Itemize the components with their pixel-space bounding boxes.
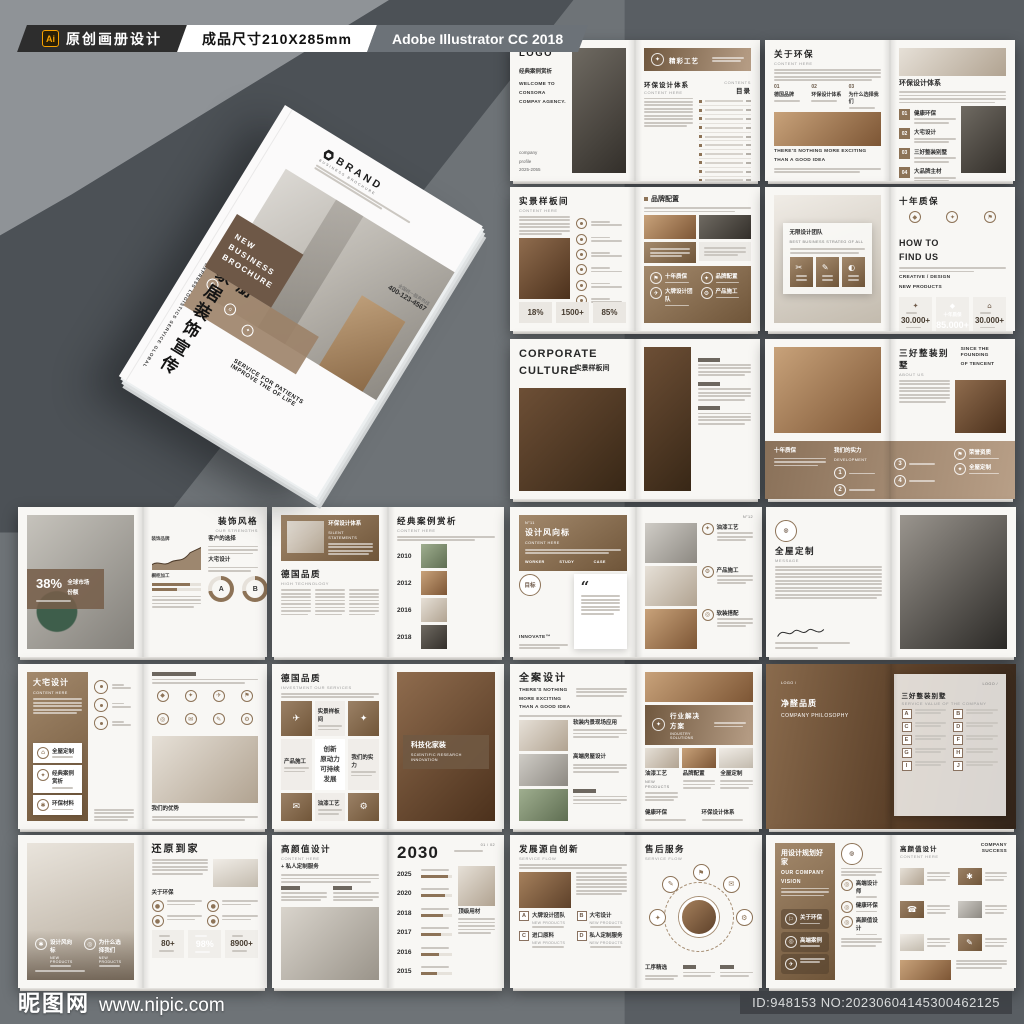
lettered-text: 大宅设计NEW PRODUCTS [590,911,628,928]
text-label: 01 / 02 [454,843,495,848]
text-label: INNOVATE™ [519,635,568,641]
spread-back-to-home: ✱设计风向标NEW PRODUCTS◎为什么选择我们NEW PRODUCTS还原… [18,835,267,988]
icon: ● [207,915,219,927]
panel: ⌂全屋定制 [33,743,82,763]
icon-item: ◎软装搭配 [702,609,754,627]
lettered-item: D [953,722,998,732]
spacer [781,688,866,696]
stat-icon: ◆ [950,302,955,310]
progress-track [421,933,452,936]
numbered-circle-row: 3 [894,458,946,470]
column: 202520202018201720162015 [397,866,452,980]
section-heading: 装饰风格OUR STRENGTHS [152,515,259,533]
spacer [519,598,568,632]
icon-grid: ⌂全屋定制 [37,747,78,759]
text-label: 份额 [67,590,94,597]
list-item-text [591,252,627,257]
text-label: 高端房屋设计 [573,754,627,761]
tile-cell [900,928,950,957]
text-lines [33,698,82,714]
icon-label: 全屋定制 [969,463,1006,471]
text-lines [966,722,998,727]
icon-grid: ◆✦✈⚑◎✉✎⚙ [152,690,259,734]
icon: ✦ [701,272,713,284]
panel: 大宅设计CONTENT HERE⌂全屋定制✦经典案例赏析✱环保材料 [27,672,88,821]
item-label: 三好整装别墅 [914,148,956,156]
toc-title-bar [705,109,743,111]
heading-en: INVESTMENT OUR SERVICES [281,685,379,690]
icon-item: ◎高颜值设计 [841,916,882,935]
timeline-row: 2016 [397,944,452,961]
column [900,960,951,980]
stats-row: 80+98%8900+ [152,930,259,958]
text-label: 健康环保 [645,810,697,817]
row [519,789,627,821]
text-lines [112,724,133,726]
progress-track [421,972,452,975]
heading-en: ABOUT US [899,372,956,377]
row: 高颜值设计CONTENT HERECOMPANY SUCCESS [900,843,1007,859]
column [699,242,751,263]
photo-placeholder [519,238,570,299]
item-text: 三好整装别墅 [914,148,956,163]
text-section [573,789,627,804]
section-heading: 售后服务SERVICE FLOW [645,843,753,861]
text-lines [590,926,628,928]
icon-item: ◎为什么选择我们NEW PRODUCTS [84,938,126,967]
text-lines [591,252,627,254]
icon-item: ● [207,900,258,912]
text-label: CONTENT HERE [33,691,82,696]
text-lines [232,935,251,937]
item-label: 健康环保 [914,109,956,117]
spread-timeline-2030: 高颜值设计CONTENT HERE+ 私人定制服务203001 / 022025… [272,835,504,988]
text-lines [790,248,866,253]
circle-number: 4 [894,475,906,487]
timeline-photo [421,598,447,622]
icon-item-text [800,958,825,963]
text-lines [716,297,746,299]
flow-node-icon: ⚑ [693,864,710,881]
panel: ◎高端案例 [781,932,829,952]
text-lines [848,275,859,280]
toc-title-bar [705,144,743,146]
toc-page-number [746,136,751,138]
step-number: 03 [849,84,881,90]
circle-badge-wrap: 目标 [519,574,568,596]
icon-label: 经典案例赏析 [52,769,78,785]
column [519,872,571,908]
text-label: 品牌配置 [644,195,751,204]
list-item [576,216,627,231]
column [720,965,753,980]
icon: ✈ [650,287,662,299]
text-lines [966,709,998,714]
icon-label: 十年质保 [665,272,695,280]
column [719,748,753,768]
spread-pages: 实景样板间CONTENT HERE18%1500+85%品牌配置⚑十年质保✦品牌… [510,187,760,331]
section-label-bar [698,382,720,386]
flow-node-icon: ✎ [662,876,679,893]
text-lines [915,709,947,714]
icon-item-text [222,900,258,905]
text-section [698,358,751,377]
icon-item: ✉ [180,713,202,733]
stat-value: 85.000+ [936,320,969,330]
panel: 环保设计体系SILENT STATEMENTS [281,515,379,561]
section-heading: 德国品质INVESTMENT OUR SERVICES [281,672,379,690]
photo-placeholder [645,523,697,563]
text-lines [717,532,754,541]
text-label: 大宅设计 [208,557,258,564]
row: ●●●● [152,900,259,927]
toc-row [699,177,751,181]
column [519,754,568,786]
progress-track [421,914,452,917]
text-label: NEW PRODUCTS [899,285,1006,291]
page-right: 还原到家关于环保●●●●80+98%8900+ [143,835,268,988]
list-item [576,278,627,293]
column [644,242,696,263]
numbered-circles: 12 [834,465,886,499]
icon-item-text: 关于环保 [800,913,825,924]
stat-card: 18% [519,302,552,323]
timeline-row: 2018 [397,625,495,649]
text-tile: 油漆工艺 [315,793,346,821]
row: 环保设计体系CONTENT HERECONTENTS目录 [644,79,751,173]
lettered-text [915,748,947,758]
letter-badge: E [902,735,912,745]
circle-icon [94,680,108,694]
page-left [765,339,890,441]
lettered-item: A [902,709,947,719]
step-label: 为什么选择我们 [849,91,881,105]
text-lines [969,458,1006,460]
spacer [281,564,379,565]
text-label: THAN A GOOD IDEA [774,158,881,164]
column: ●● [207,900,258,927]
spread-innovation: 德国品质INVESTMENT OUR SERVICES✈实景样板间✦产品施工创新… [272,664,504,829]
letter-badge: C [519,931,529,941]
text-lines [591,267,627,269]
toc-page-number [746,109,751,111]
icon: ✈ [785,958,797,970]
column [519,216,570,299]
column [572,48,626,173]
tile-text [927,872,950,881]
lettered-text [966,722,998,732]
text-label: 38% [36,576,63,593]
column: ⚙产品施工 [702,566,754,606]
heading-cn: 经典案例赏析 [397,515,495,527]
icon-item: ⚑十年质保 [650,272,695,284]
text-lines [573,729,627,738]
photo-placeholder [572,48,626,173]
text-lines [318,725,343,730]
item-text: 大品牌主材 [914,167,956,181]
photo-placeholder [900,960,951,980]
brochure-cover-mockup: BRAND BUSINESS BROCHURE ◐ ⌂ ✦ NEW BUSINE… [35,75,505,515]
spread-pages: 全案设计THERE'S NOTHINGMORE EXCITINGTHAN A G… [510,664,762,829]
header-product-label: 原创画册设计 [66,29,162,49]
text-lines [914,138,956,143]
spread-pages: 环保设计体系SILENT STATEMENTS德国品质HIGH TECHNOLO… [272,507,504,657]
text-lines [714,722,747,727]
list-item [94,696,133,714]
spread-mansion-design: 大宅设计CONTENT HERE⌂全屋定制✦经典案例赏析✱环保材料◆✦✈⚑◎✉✎… [18,664,267,829]
stats-row: ✦30.000+◆十年质保85.000+⌂30.000+ [899,297,1006,331]
timeline-row: 2010 [397,544,495,568]
text-lines [985,872,1008,881]
column: 2030 [397,843,450,863]
column: SINCE THE FOUNDINGOF TENCENT [961,347,1006,377]
column [576,688,628,712]
column [573,789,627,821]
icon-grid: ◎软装搭配 [702,609,754,627]
page-right: 环保设计体系01健康环保02大宅设计03三好整装别墅04大品牌主材 [890,40,1015,181]
column [281,886,327,904]
column [899,380,950,433]
icon-item-text: 经典案例赏析 [52,769,78,788]
photo-placeholder [287,521,324,553]
site-url: www.nipic.com [99,995,225,1017]
text-label: ✂ [796,263,807,273]
page-right: 三好整装别墅ABOUT USSINCE THE FOUNDINGOF TENCE… [890,339,1015,441]
toc-bullet [699,135,702,138]
column: ◎为什么选择我们NEW PRODUCTS [84,938,126,967]
toc-row [699,98,751,107]
toc-title-bar [705,179,743,181]
mixed-tiles: ✱☎✎ [900,862,1007,957]
icon: ◎ [785,936,797,948]
icon-sublabel: NEW PRODUCTS [50,956,77,964]
text-label: 油漆工艺 [645,771,678,778]
toc-bullet [699,170,702,173]
spread-pages: 用设计规划好家OUR COMPANYVISION⚐关于环保◎高端案例✈◎◎高端设… [766,835,1016,988]
text-lines [800,958,825,963]
text-lines [591,271,627,273]
icon-item-text: 全屋定制 [969,463,1006,474]
section-heading: 三好整装别墅SERVICE VALUE OF THE COMPANY [902,690,999,706]
text-lines [702,819,754,821]
spacer [894,448,946,453]
text-lines [208,546,258,555]
column: ◎◎高端设计师◎健康环保◎高颜值设计 [841,843,882,980]
text-label: CONTENT HERE [525,541,621,546]
stat-card: 1500+ [556,302,589,323]
column: 品牌配置 [683,771,716,807]
row: 203001 / 02 [397,843,495,863]
text-lines [397,536,495,541]
icon-item: ✦全屋定制 [954,463,1006,475]
timeline-year: 2010 [397,553,417,560]
icon-label: 软装搭配 [717,609,754,617]
item-label: 大牌设计团队 [532,911,570,919]
lettered-text: 进口原料NEW PRODUCTS [532,931,570,948]
text-lines [899,91,1006,103]
spacer [67,576,94,578]
page-left: CORPORATECULTURE实景样板间 [510,339,635,499]
stat-icon: ⌂ [987,302,991,310]
photo-placeholder [519,789,568,821]
row [900,960,1007,980]
text-section [333,886,379,901]
section-label-bar [698,406,720,410]
text-lines [849,107,881,109]
letter-badge: B [953,709,963,719]
spread-pages: N°11设计风向标CONTENT HEREWORKERSTUDYCASE目标IN… [510,507,762,657]
text-lines [927,905,950,914]
stat-card: 85% [593,302,626,323]
text-label: 环保设计体系 [899,79,1006,88]
text-label: profile [519,159,566,165]
text-label: STUDY [559,560,586,565]
text-lines [576,872,628,895]
lettered-item: H [953,748,998,758]
page-right: 203001 / 02202520202018201720162015顶级用材 [388,835,504,988]
page-left: 用设计规划好家OUR COMPANYVISION⚐关于环保◎高端案例✈◎◎高端设… [766,835,891,988]
row [152,859,259,887]
tile-label: 油漆工艺 [318,799,343,807]
circle-text [849,473,886,475]
page-left: 实景样板间CONTENT HERE18%1500+85% [510,187,635,331]
text-lines [841,938,882,947]
section-label-bar [720,965,734,969]
text-lines [284,767,309,772]
column: 装饰品牌橱柜加工 [152,536,202,649]
numbered-circle-row: 1 [834,467,886,479]
photo-placeholder [644,347,691,491]
panel: ⚑十年质保✦品牌配置✈大牌设计团队⚙产品施工 [644,266,751,323]
text-label: 装饰品牌 [152,536,202,542]
icon-label: 荣誉资质 [969,448,1006,456]
spread-company-vision: 用设计规划好家OUR COMPANYVISION⚐关于环保◎高端案例✈◎◎高端设… [766,835,1016,988]
list-item [576,247,627,262]
spacer [519,63,566,67]
text-lines [195,951,214,953]
band-title: 精彩工艺 [669,55,701,65]
icon-sublabel: NEW PRODUCTS [99,956,126,964]
icon: ✱ [35,938,47,950]
text-lines [909,463,946,465]
panel [644,242,696,263]
column: 工序精选 [645,965,678,980]
heading-cn: 关于环保 [774,48,881,60]
header-product-segment: Ai 原创画册设计 [22,25,182,52]
text-label: 科技化家装 [411,741,481,750]
lettered-item: C进口原料NEW PRODUCTS [519,931,570,948]
icon-item: ✈ [785,958,825,970]
header-band: ✦行业解决方案INDUSTRY SOLUTIONS [645,705,753,745]
text-lines [720,780,753,789]
text-label: 用设计规划好家 [781,849,829,867]
band-text: 精彩工艺 [669,55,701,65]
text-lines [915,748,947,753]
tile-icon: ☎ [900,901,924,918]
circle-text [909,463,946,465]
icon: ✦ [946,211,958,223]
column [645,523,697,563]
text-label: 我们的实力 [834,448,886,455]
timeline-year: 2017 [397,929,417,936]
spacer [33,717,82,741]
text-lines [645,819,697,821]
lettered-item: B [953,709,998,719]
text-lines [906,312,925,314]
text-label: 橱柜加工 [152,573,202,579]
flow-node-icon: ✉ [723,876,740,893]
heading-cn: 发展源自创新 [519,843,627,855]
item-sublabel: NEW PRODUCTS [532,941,570,945]
text-lines [915,761,947,766]
text-label: 关于环保 [152,890,259,897]
item-number: 01 [899,109,910,120]
photo-placeholder [774,112,881,146]
list-item-text [591,283,627,288]
stat-value: 8900+ [230,939,252,948]
page-right: ✦精彩工艺环保设计体系CONTENT HERECONTENTS目录 [635,40,760,181]
page-left: 发展源自创新SERVICE FLOWA大牌设计团队NEW PRODUCTSB大宅… [510,835,636,988]
stat-value: 98% [196,939,214,949]
text-lines [167,915,203,920]
icon-label: 高端设计师 [856,879,882,895]
quote-card: “ [574,574,627,649]
page-left: 德国品质INVESTMENT OUR SERVICES✈实景样板间✦产品施工创新… [272,664,388,829]
section-heading: 环保设计体系CONTENT HERE [644,79,693,95]
column: 38% [36,576,63,597]
text-lines [573,796,627,805]
text-label: SINCE THE FOUNDING [961,347,1006,359]
text-lines [915,722,947,727]
icon-item-text: 十年质保 [665,272,695,283]
text-label: WORKER [525,560,552,565]
text-lines [36,600,95,602]
numbered-item: 01健康环保 [899,106,956,126]
heading-en: CONTENT HERE [519,208,626,213]
toc-bullet [699,161,702,164]
text-lines [349,589,379,615]
text-label: BEST BUSINESS STRATEG OF ALL [790,240,866,245]
section-label-bar [573,789,596,793]
icon: ⚐ [785,913,797,925]
section-label-bar [698,358,720,362]
circle-icon [94,698,108,712]
text-lines [698,364,751,376]
column [698,347,751,491]
page-right: ✦行业解决方案INDUSTRY SOLUTIONS油漆工艺NEW PRODUCT… [636,664,762,829]
icon-item: ⚑ [974,211,1006,235]
text-tile: 产品施工 [281,739,312,790]
row: 目标INNOVATE™“ [519,574,627,649]
letter-badge: C [902,722,912,732]
row: 高端房屋设计 [519,754,627,786]
column [519,720,568,752]
lettered-item: F [953,735,998,745]
icon: ⌂ [37,747,49,759]
lettered-text [915,709,947,719]
band-text: 行业解决方案INDUSTRY SOLUTIONS [670,710,703,740]
page-right: ◆✦✈⚑◎✉✎⚙我们的优势 [143,664,268,829]
text-tile: 实景样板间 [315,701,346,736]
text-lines [421,908,452,910]
text-lines [841,868,882,877]
tile-text [985,905,1008,914]
letter-badge: J [953,761,963,771]
list-item-text [591,221,627,226]
text-label: CORPORATE [519,347,626,361]
column: 客户的选择大宅设计AB [208,536,258,649]
text-lines [849,489,886,491]
